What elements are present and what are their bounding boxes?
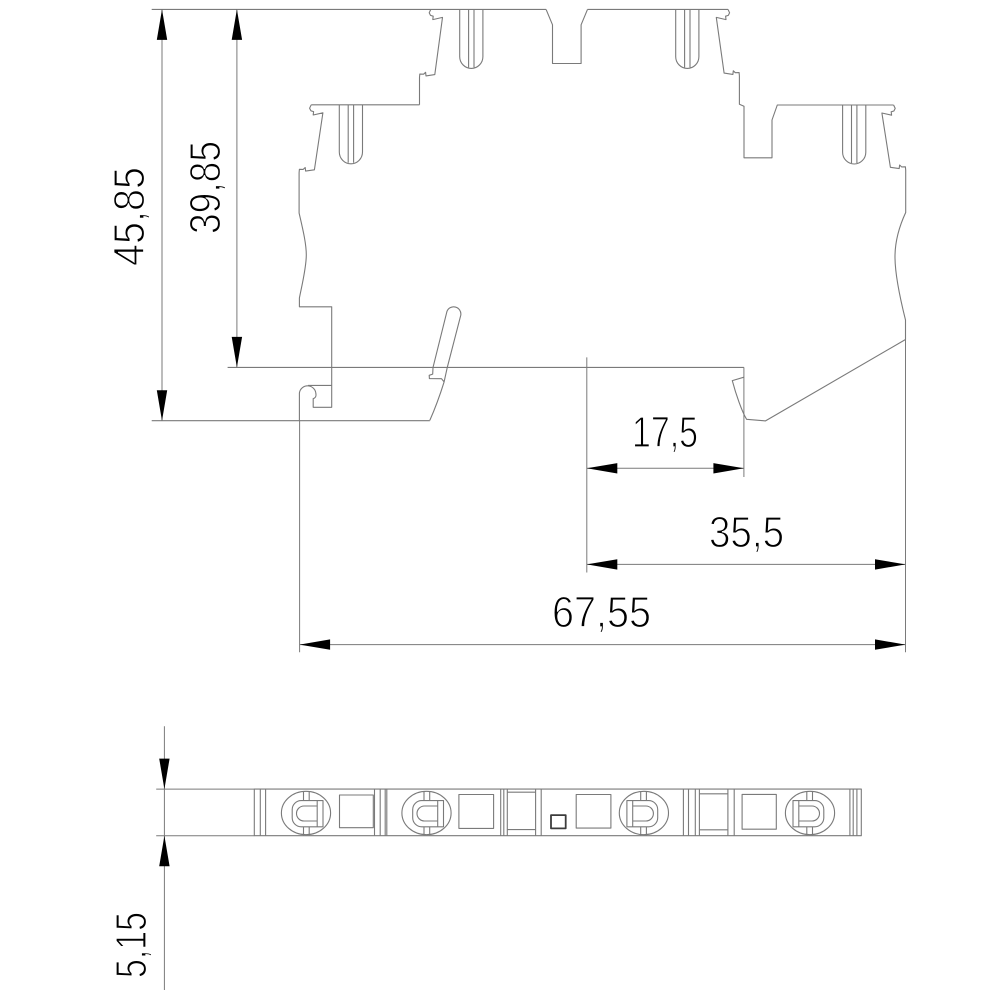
svg-text:17,5: 17,5 <box>632 408 698 457</box>
svg-text:45,85: 45,85 <box>105 167 154 266</box>
svg-text:5,15: 5,15 <box>107 912 156 978</box>
svg-text:67,55: 67,55 <box>552 588 651 637</box>
svg-text:39,85: 39,85 <box>181 141 230 234</box>
svg-text:35,5: 35,5 <box>709 508 784 557</box>
